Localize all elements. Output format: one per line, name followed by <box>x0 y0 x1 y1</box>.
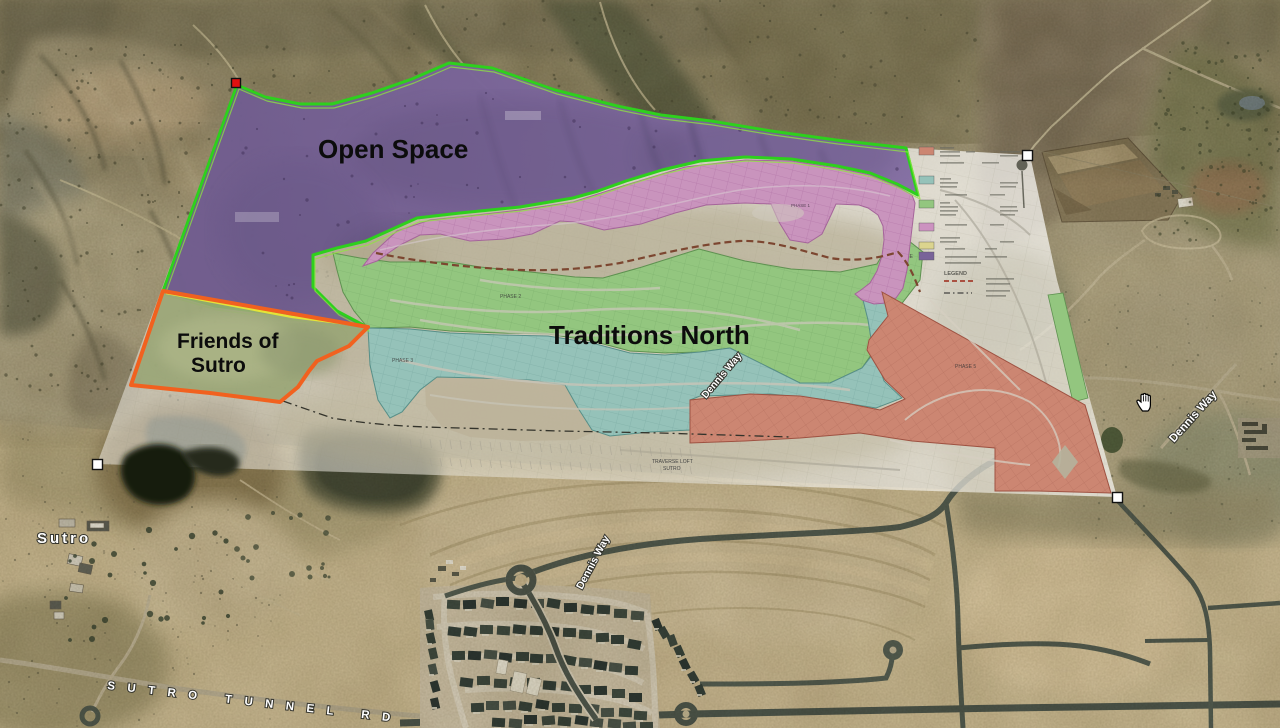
svg-text:Open Space: Open Space <box>318 134 468 164</box>
svg-text:Sutro: Sutro <box>37 530 91 547</box>
svg-text:PHASE 2: PHASE 2 <box>500 294 521 300</box>
svg-text:PHASE 3: PHASE 3 <box>392 358 413 364</box>
svg-text:PHASE 1: PHASE 1 <box>791 203 811 208</box>
svg-text:TRAVERSE LOFT: TRAVERSE LOFT <box>652 459 693 465</box>
svg-text:Traditions North: Traditions North <box>549 320 750 350</box>
svg-text:PHASE 5: PHASE 5 <box>955 364 976 370</box>
svg-text:SUTRO: SUTRO <box>663 466 681 472</box>
svg-text:LEGEND: LEGEND <box>944 271 967 277</box>
svg-text:Friends of: Friends of <box>177 330 280 353</box>
svg-text:Sutro: Sutro <box>191 354 246 377</box>
